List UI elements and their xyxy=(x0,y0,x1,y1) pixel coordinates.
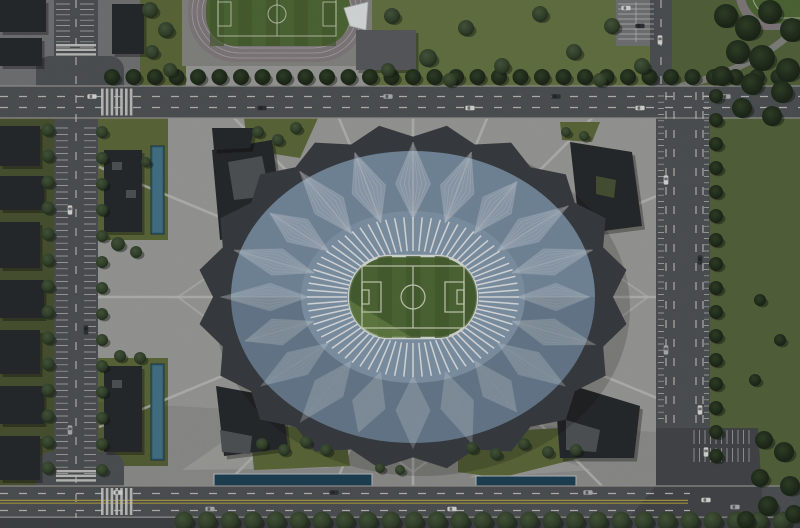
stadium-aerial-render xyxy=(0,0,800,528)
scene-svg xyxy=(0,0,800,528)
photo-grain-overlay xyxy=(0,0,800,528)
